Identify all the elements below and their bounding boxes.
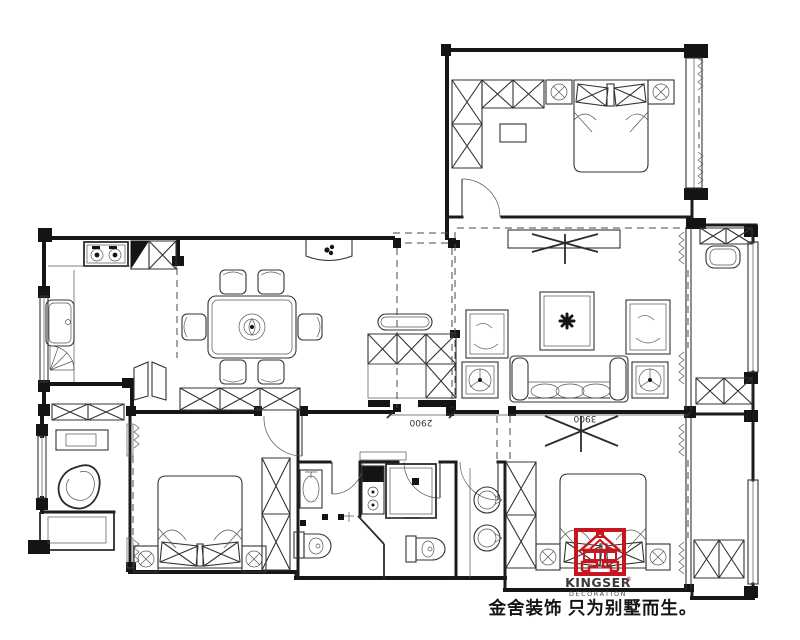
cabinet-strip	[52, 404, 124, 420]
double-bed-icon	[560, 474, 646, 568]
drain-fan-icon	[50, 346, 74, 370]
walls	[40, 50, 756, 598]
door-swing	[404, 462, 440, 498]
low-cabinet	[180, 388, 300, 410]
counter-edge	[48, 266, 130, 382]
washbasin-icon	[300, 470, 322, 508]
platform	[48, 517, 106, 543]
side-table	[500, 124, 526, 142]
tv-cabinet-icon	[508, 230, 620, 264]
gas-stove-icon	[84, 242, 128, 266]
living-room	[455, 228, 686, 408]
bedroom-second	[134, 416, 302, 572]
plant-table-icon	[462, 362, 498, 398]
nightstand-lamp-icon	[536, 544, 560, 570]
double-round-basin-icon	[470, 468, 502, 578]
window-balcony-upper	[748, 242, 758, 372]
dining-chair-icon	[258, 270, 284, 294]
nightstand-lamp-icon	[646, 544, 670, 570]
nightstand-lamp-icon	[648, 80, 674, 104]
armchair-icon	[626, 300, 670, 354]
bathrooms	[294, 452, 502, 578]
dimensions: 2900 3900	[387, 412, 691, 427]
laundry-basin-icon	[706, 246, 740, 268]
window-master-right	[686, 418, 691, 590]
dimension-label: 3900	[573, 413, 596, 423]
door-swing	[462, 179, 500, 217]
desk-icon	[56, 430, 108, 450]
balcony-cabinet	[694, 540, 744, 578]
kitchen	[46, 241, 177, 400]
study-room	[48, 404, 139, 564]
dining-room	[180, 270, 322, 410]
dining-chair-icon	[298, 314, 322, 340]
wardrobe-icon	[452, 80, 544, 168]
floor-plan-drawing: 2900 3900 KINGSER ® DECORATION 金舍装饰 只为别墅…	[0, 0, 800, 640]
curtain-icon	[679, 424, 688, 574]
dining-chair-icon	[220, 270, 246, 294]
floor-drain	[300, 520, 306, 526]
window-balcony-lower	[748, 480, 758, 584]
floor-drain	[322, 514, 328, 520]
nightstand-lamp-icon	[546, 80, 572, 104]
plant-table-icon	[632, 362, 668, 398]
balcony-right	[679, 228, 752, 578]
folding-door	[134, 362, 166, 400]
toilet-icon	[294, 532, 331, 558]
curtain-icon	[133, 424, 139, 564]
dining-chair-icon	[220, 360, 246, 384]
vanity-cabinet-icon	[362, 466, 384, 514]
floor-plan-canvas: 2900 3900 KINGSER ® DECORATION 金舍装饰 只为别墅…	[0, 0, 800, 640]
dining-chair-icon	[258, 360, 284, 384]
brand-tagline: 金舍装饰 只为别墅而生。	[488, 598, 698, 618]
shower-cabin-icon	[386, 464, 436, 518]
lintel	[360, 452, 406, 460]
door-swing	[332, 462, 363, 494]
bedroom-top-right	[452, 58, 703, 217]
brand-subtitle: DECORATION	[569, 590, 627, 598]
shoe-cabinet-icon	[368, 334, 456, 407]
registered-mark: ®	[626, 576, 632, 583]
door-swing	[264, 416, 302, 456]
window-kitchen-left	[40, 296, 48, 382]
double-bed-icon	[158, 476, 242, 568]
sofa-icon	[510, 356, 628, 402]
curtain-icon	[679, 232, 688, 384]
rug-medallion-icon	[540, 292, 594, 350]
double-bed-icon	[574, 80, 648, 172]
bean-chair-icon	[59, 465, 100, 508]
kitchen-sink-icon	[46, 300, 74, 346]
armchair-icon	[466, 310, 508, 358]
window-bay-top-right	[686, 58, 702, 188]
dimension-label: 2900	[409, 417, 432, 427]
wardrobe-icon	[506, 462, 536, 568]
refrigerator-icon	[131, 241, 176, 269]
dining-chair-icon	[182, 314, 206, 340]
dining-table-icon	[208, 296, 296, 358]
entry-niche-plant	[306, 240, 352, 261]
toilet-icon	[406, 536, 445, 562]
windows	[38, 58, 758, 590]
window-study-left	[38, 436, 46, 498]
balcony-cabinet	[696, 378, 752, 404]
hall-bench	[378, 314, 432, 330]
hallway	[306, 240, 456, 408]
brand-name: KINGSER	[565, 575, 631, 590]
kingser-logo-icon	[576, 530, 624, 574]
faucet-icon	[338, 512, 354, 522]
door-swing	[460, 462, 498, 500]
